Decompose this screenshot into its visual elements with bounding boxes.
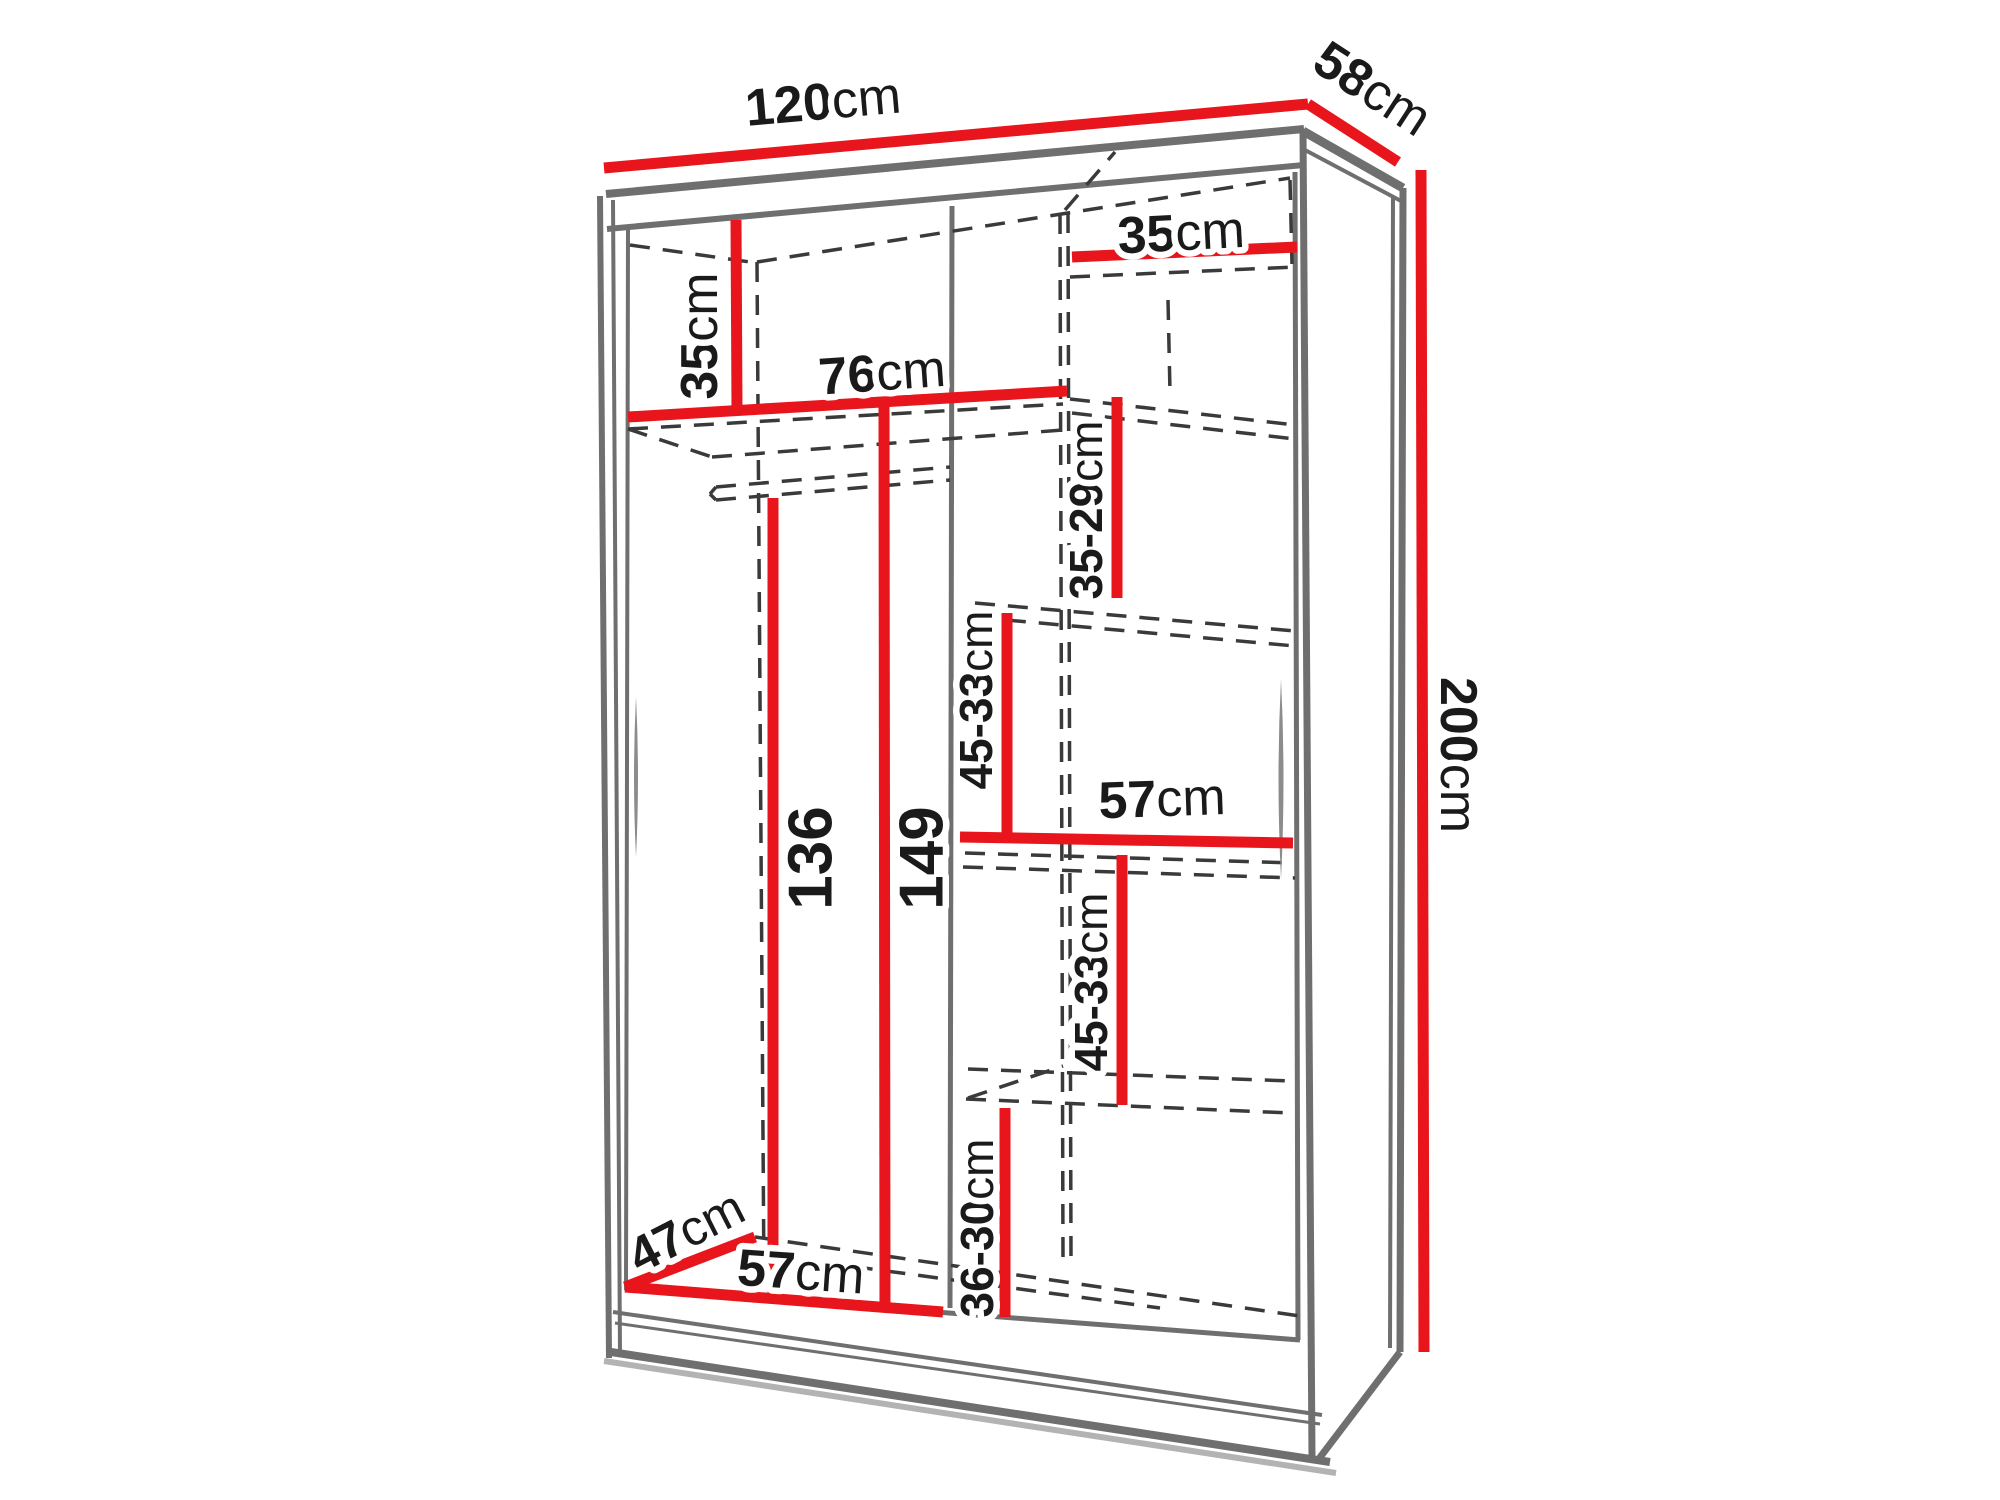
- dim-height-label: 200cm: [1429, 677, 1487, 833]
- divider-back-edge-b: [1068, 213, 1071, 1256]
- plinth-top-edge-a: [613, 1312, 1322, 1415]
- dim-hanging-space-label-value: 136: [777, 806, 846, 909]
- shelf-d-back-edge: [963, 867, 1295, 878]
- left-shelf-depth-edge: [628, 429, 712, 457]
- dimension-labels: 120cm58cm200cm35cm35cm76cm35-29cm45-33cm…: [619, 30, 1487, 1317]
- dim-shelf-gap-4-label-unit: cm: [951, 1139, 1003, 1200]
- dim-width-label-unit: cm: [829, 67, 903, 131]
- left-edge-inner: [626, 226, 628, 1290]
- dim-shelf-gap-2-label-value: 45-33: [950, 672, 1002, 790]
- dim-depth-label: 58cm: [1303, 30, 1441, 148]
- dim-floor-width-label: 57cm: [735, 1239, 866, 1306]
- dim-width-label: 120cm: [743, 67, 904, 138]
- dim-shelf-gap-2-label-unit: cm: [950, 611, 1002, 672]
- dim-right-top-shelf-label-value: 35: [1116, 205, 1177, 266]
- dim-right-section-width-label: 57cm: [1097, 768, 1226, 830]
- dim-left-section-width-label-value: 76: [817, 345, 879, 407]
- dim-line-height-200: [1421, 170, 1424, 1352]
- dim-left-section-width-label: 76cm: [817, 340, 948, 407]
- shelf-a-back-edge: [1070, 267, 1295, 277]
- diagram-canvas: 120cm58cm200cm35cm35cm76cm35-29cm45-33cm…: [0, 0, 2000, 1500]
- dim-left-top-shelf-label-unit: cm: [671, 272, 729, 341]
- shelf-c-back-edge: [973, 617, 1295, 646]
- hanging-rail-cap-b: [710, 494, 716, 500]
- left-panel-reflection: [634, 697, 638, 857]
- dim-width-label-value: 120: [743, 73, 834, 138]
- dim-shelf-gap-4-label: 36-30cm: [951, 1139, 1003, 1318]
- dim-left-top-shelf-label-value: 35: [671, 342, 729, 400]
- plinth-bottom-edge: [611, 1352, 1330, 1462]
- dim-shelf-gap-3-label: 45-33cm: [1065, 893, 1117, 1072]
- dim-shelf-gap-1-label-unit: cm: [1060, 421, 1112, 482]
- side-back-outer-edge: [1400, 188, 1403, 1352]
- right-front-edge: [1303, 131, 1312, 1458]
- dim-left-section-width-label-unit: cm: [874, 340, 947, 403]
- dim-shelf-gap-4-label-value: 36-30: [951, 1200, 1003, 1318]
- shelf-e-back-edge: [966, 1099, 1290, 1113]
- dim-shelf-gap-1-label: 35-29cm: [1060, 421, 1112, 600]
- plinth-shadow: [604, 1361, 1336, 1473]
- dim-hanging-space-label: 136: [777, 806, 846, 909]
- dim-right-top-shelf-label-unit: cm: [1174, 201, 1246, 263]
- dim-right-top-shelf-label: 35cm: [1116, 201, 1246, 266]
- back-mid-segment: [1168, 300, 1170, 392]
- dim-right-section-width-label-value: 57: [1097, 770, 1157, 830]
- dim-height-label-unit: cm: [1429, 764, 1487, 833]
- left-edge-outer: [600, 196, 609, 1358]
- divider-back-edge-a: [1060, 214, 1063, 1258]
- dim-floor-width-label-unit: cm: [793, 1243, 866, 1306]
- dim-right-section-width-label-unit: cm: [1155, 768, 1226, 828]
- dim-height-label-value: 200: [1429, 677, 1487, 764]
- wardrobe-dimension-diagram: 120cm58cm200cm35cm35cm76cm35-29cm45-33cm…: [0, 0, 2000, 1500]
- side-back-inner-edge: [1390, 196, 1393, 1348]
- side-bottom-edge: [1318, 1352, 1400, 1460]
- right-edge-inner: [1295, 172, 1298, 1340]
- dim-interior-height-label: 149: [888, 806, 957, 909]
- hanging-rail-cap-a: [710, 487, 716, 494]
- dim-floor-width-label-value: 57: [735, 1239, 797, 1301]
- dim-left-top-shelf-label: 35cm: [671, 272, 729, 399]
- left-edge-mid: [613, 200, 620, 1356]
- shelf-e-front-edge: [968, 1069, 1290, 1081]
- page: { "diagram": { "type": "furniture-dimens…: [0, 0, 2000, 1500]
- shelf-c-front-edge: [975, 603, 1295, 631]
- dim-line-left-top-shelf-35: [736, 220, 737, 410]
- right-panel-reflection: [1279, 679, 1284, 879]
- dim-shelf-gap-3-label-value: 45-33: [1065, 954, 1117, 1072]
- dim-interior-height-label-value: 149: [888, 806, 957, 909]
- dim-line-interior-149: [884, 402, 885, 1310]
- dim-shelf-gap-3-label-unit: cm: [1065, 893, 1117, 954]
- dim-shelf-gap-1-label-value: 35-29: [1060, 482, 1112, 600]
- dim-shelf-gap-2-label: 45-33cm: [950, 611, 1002, 790]
- dim-line-right-width-57: [960, 837, 1293, 843]
- shelf-d-front-edge: [965, 853, 1295, 863]
- back-left-corner-edge: [757, 262, 764, 1282]
